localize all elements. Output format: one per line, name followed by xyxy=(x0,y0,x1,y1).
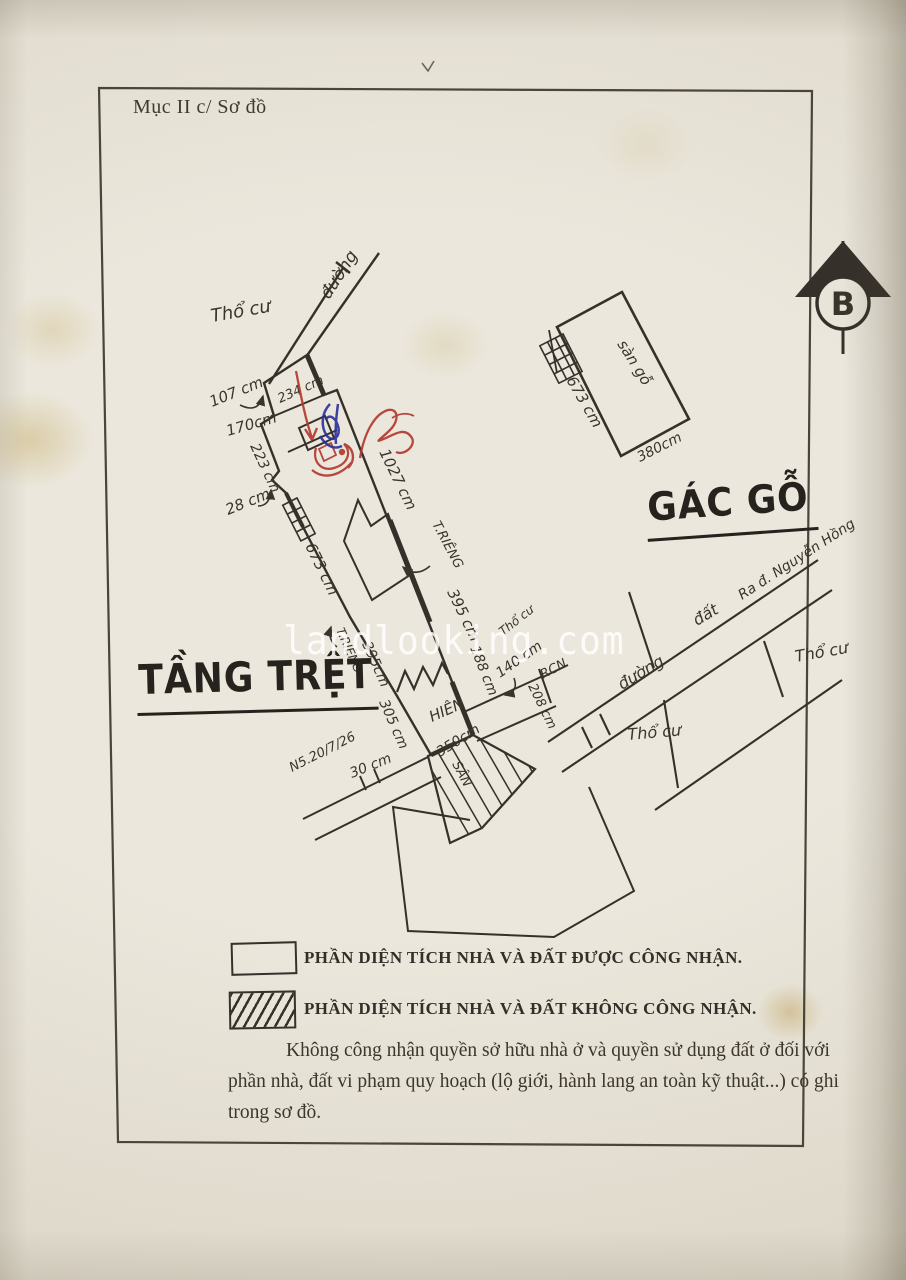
attic-title: GÁC GỖ xyxy=(644,474,818,542)
parcel-branch xyxy=(764,641,783,697)
watermark: landlooking.com xyxy=(283,619,624,664)
interior-room xyxy=(344,500,410,600)
legend-note: Không công nhận quyền sở hữu nhà ở và qu… xyxy=(228,1035,842,1129)
parcel-branch xyxy=(664,700,678,788)
legend-swatch-not-recognized xyxy=(229,990,297,1029)
label-107: 107 cm xyxy=(207,373,266,411)
adjacent-parcel-outline xyxy=(393,787,634,937)
top-tick-mark xyxy=(422,61,434,71)
house-stairs xyxy=(283,498,315,541)
label-170: 170cm xyxy=(224,408,278,439)
label-305: 305 cm xyxy=(375,697,411,751)
top-road xyxy=(269,253,379,384)
blue-pen-marks xyxy=(320,404,342,448)
north-label: B xyxy=(831,285,855,323)
label-t-rieng-1: T.RIÊNG xyxy=(428,518,466,571)
section-header: Mục II c/ Sơ đồ xyxy=(133,96,267,119)
scanned-survey-document: B xyxy=(0,0,906,1280)
label-dat-right: đất xyxy=(689,599,722,629)
label-28: 28 cm xyxy=(223,485,273,519)
label-673-house: 673 cm xyxy=(301,540,342,598)
legend-label-recognized: PHẦN DIỆN TÍCH NHÀ VÀ ĐẤT ĐƯỢC CÔNG NHẬN… xyxy=(304,948,742,968)
zigzag-wall xyxy=(397,663,448,692)
dirt-road xyxy=(548,560,842,810)
label-tho-cu-mid: Thổ cư xyxy=(627,720,684,744)
label-hien: HIÊN xyxy=(426,693,467,725)
label-san: SÂN xyxy=(448,758,475,789)
legend-swatch-recognized xyxy=(231,941,298,976)
attic-outline xyxy=(549,292,689,456)
label-tho-cu-top: Thổ cư xyxy=(209,295,274,326)
label-duong-top: đường xyxy=(316,247,362,303)
label-tho-cu-right: Thổ cư xyxy=(793,638,851,666)
label-350: 350cm xyxy=(434,721,483,760)
legend-label-not-recognized: PHẦN DIỆN TÍCH NHÀ VÀ ĐẤT KHÔNG CÔNG NHẬ… xyxy=(304,999,757,1019)
